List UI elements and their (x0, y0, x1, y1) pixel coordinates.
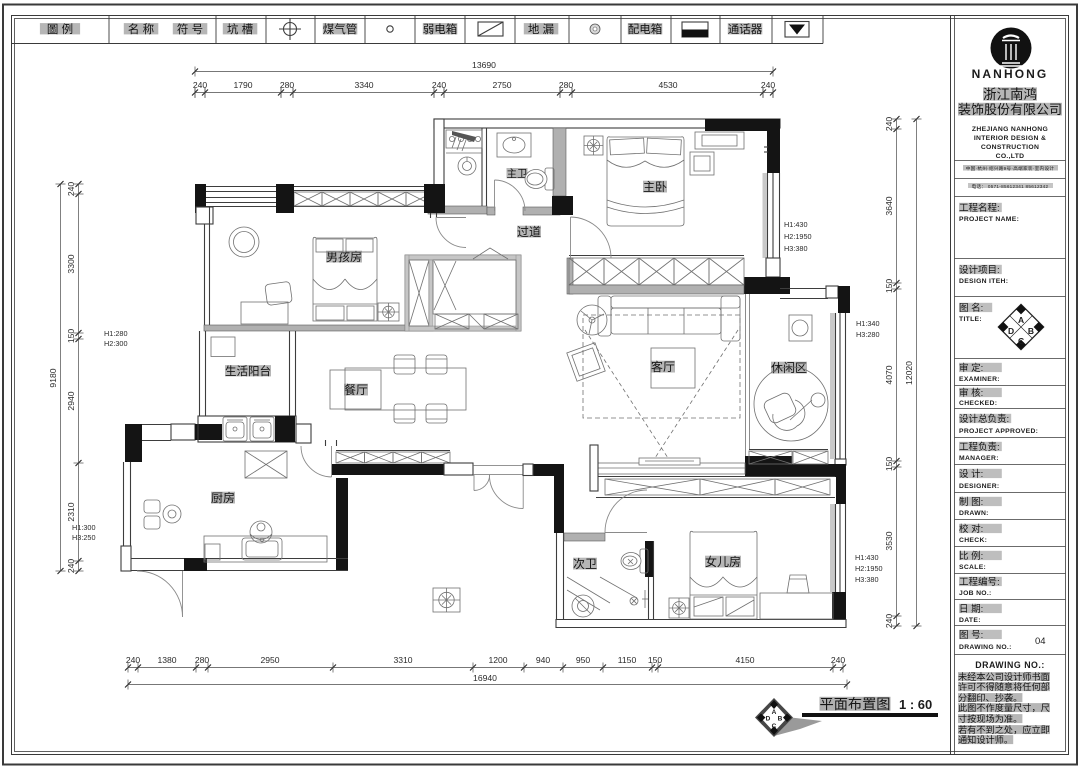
svg-text:280: 280 (280, 80, 295, 90)
svg-text:1380: 1380 (157, 655, 176, 665)
svg-text:C: C (772, 723, 777, 730)
svg-text:生活阳台: 生活阳台 (225, 364, 271, 378)
svg-text:女儿房: 女儿房 (705, 554, 741, 569)
svg-text:装饰股份有限公司: 装饰股份有限公司 (958, 102, 1062, 117)
svg-text:B: B (778, 716, 783, 723)
svg-text:许可不得随意将任何部: 许可不得随意将任何部 (958, 681, 1050, 692)
svg-text:B: B (1028, 326, 1034, 336)
svg-text:H3:380: H3:380 (855, 575, 879, 584)
svg-text:寸按现场为准。: 寸按现场为准。 (958, 713, 1022, 724)
svg-text:3340: 3340 (354, 80, 373, 90)
svg-text:符 号: 符 号 (177, 22, 203, 36)
svg-text:150: 150 (66, 329, 76, 344)
svg-text:INTERIOR DESIGN &: INTERIOR DESIGN & (974, 135, 1046, 142)
svg-text:H1:280: H1:280 (104, 329, 128, 338)
svg-text:280: 280 (195, 655, 210, 665)
svg-text:审 核:: 审 核: (959, 387, 983, 399)
svg-text:H3:280: H3:280 (856, 330, 880, 339)
svg-text:4150: 4150 (735, 655, 754, 665)
svg-text:240: 240 (66, 182, 76, 197)
svg-text:240: 240 (831, 655, 846, 665)
svg-text:1200: 1200 (488, 655, 507, 665)
svg-text:240: 240 (432, 80, 447, 90)
svg-text:H1:430: H1:430 (855, 553, 879, 562)
svg-text:JOB NO.:: JOB NO.: (959, 590, 992, 597)
svg-text:280: 280 (559, 80, 574, 90)
svg-text:平面布置图: 平面布置图 (820, 697, 891, 713)
svg-text:浙江南鸿: 浙江南鸿 (983, 86, 1037, 102)
svg-text:1150: 1150 (618, 655, 637, 665)
svg-text:DESIGNER:: DESIGNER: (959, 483, 999, 490)
svg-text:240: 240 (193, 80, 208, 90)
svg-text:客厅: 客厅 (651, 359, 675, 374)
svg-text:圖 例: 圖 例 (47, 22, 73, 36)
svg-text:3310: 3310 (393, 655, 412, 665)
svg-text:1 : 60: 1 : 60 (899, 697, 932, 712)
svg-text:240: 240 (884, 117, 894, 132)
svg-text:MANAGER:: MANAGER: (959, 455, 999, 462)
svg-text:H3:250: H3:250 (72, 533, 96, 542)
svg-text:DATE:: DATE: (959, 617, 981, 624)
svg-text:比 例:: 比 例: (959, 550, 983, 562)
svg-text:弱电箱: 弱电箱 (423, 22, 458, 36)
svg-text:DRAWING NO.:: DRAWING NO.: (959, 644, 1012, 651)
svg-text:设 计:: 设 计: (959, 468, 983, 480)
svg-text:4070: 4070 (884, 365, 894, 384)
svg-text:工程编号:: 工程编号: (959, 576, 1000, 588)
svg-text:CHECK:: CHECK: (959, 537, 987, 544)
svg-text:2950: 2950 (260, 655, 279, 665)
svg-text:D: D (1008, 326, 1014, 336)
svg-text:A: A (1018, 315, 1024, 325)
svg-text:TITLE:: TITLE: (959, 316, 982, 323)
svg-text:2940: 2940 (66, 391, 76, 410)
svg-text:PROJECT APPROVED:: PROJECT APPROVED: (959, 428, 1038, 435)
svg-text:工程名程:: 工程名程: (959, 202, 1000, 214)
svg-text:坑 槽: 坑 槽 (227, 22, 254, 36)
svg-text:过道: 过道 (517, 225, 541, 239)
svg-text:CHECKED:: CHECKED: (959, 400, 997, 407)
svg-text:设计项目:: 设计项目: (959, 264, 1000, 276)
svg-text:校 对:: 校 对: (959, 523, 983, 535)
svg-text:950: 950 (576, 655, 591, 665)
svg-text:分翻印、抄袭。: 分翻印、抄袭。 (958, 692, 1022, 703)
svg-text:中国·杭州·绍兴路9号·高端家装·室内设计: 中国·杭州·绍兴路9号·高端家装·室内设计 (966, 165, 1055, 172)
svg-text:240: 240 (884, 614, 894, 629)
svg-text:主卧: 主卧 (643, 180, 667, 194)
svg-text:通知设计师。: 通知设计师。 (958, 734, 1013, 745)
svg-text:H1:300: H1:300 (72, 523, 96, 532)
svg-text:12020: 12020 (904, 361, 914, 385)
svg-text:940: 940 (536, 655, 551, 665)
svg-text:CO.,LTD: CO.,LTD (996, 153, 1025, 160)
svg-text:150: 150 (884, 279, 894, 294)
svg-text:H1:430: H1:430 (784, 220, 808, 229)
svg-text:04: 04 (1035, 636, 1046, 647)
svg-text:配电箱: 配电箱 (628, 22, 663, 36)
svg-text:H2:1950: H2:1950 (855, 564, 883, 573)
svg-text:图 名:: 图 名: (959, 302, 983, 314)
svg-text:ZHEJIANG NANHONG: ZHEJIANG NANHONG (972, 126, 1048, 133)
svg-text:2750: 2750 (492, 80, 511, 90)
svg-text:图 号:: 图 号: (959, 630, 983, 641)
svg-text:C: C (1018, 336, 1024, 346)
svg-text:EXAMINER:: EXAMINER: (959, 376, 1000, 383)
svg-text:CONSTRUCTION: CONSTRUCTION (981, 144, 1039, 151)
svg-text:DESIGN ITEH:: DESIGN ITEH: (959, 278, 1008, 285)
svg-text:PROJECT NAME:: PROJECT NAME: (959, 216, 1019, 223)
svg-text:制 图:: 制 图: (959, 496, 983, 508)
svg-text:名 称: 名 称 (128, 22, 155, 36)
svg-text:若有不到之处，应立即: 若有不到之处，应立即 (958, 724, 1050, 735)
svg-text:休闲区: 休闲区 (771, 361, 807, 375)
svg-text:16940: 16940 (473, 673, 497, 683)
svg-text:H1:340: H1:340 (856, 319, 880, 328)
svg-text:240: 240 (761, 80, 776, 90)
svg-text:240: 240 (126, 655, 141, 665)
svg-text:男孩房: 男孩房 (326, 249, 362, 264)
svg-text:DRAWN:: DRAWN: (959, 510, 989, 517)
svg-text:H2:300: H2:300 (104, 339, 128, 348)
svg-text:电话： 0571-85612341 85612342: 电话： 0571-85612341 85612342 (972, 183, 1049, 190)
svg-text:150: 150 (884, 457, 894, 472)
svg-text:9180: 9180 (48, 368, 58, 387)
svg-text:通话器: 通话器 (728, 23, 763, 36)
svg-text:13690: 13690 (472, 60, 496, 70)
svg-text:DRAWING NO.:: DRAWING NO.: (975, 660, 1045, 670)
svg-text:2310: 2310 (66, 502, 76, 521)
svg-text:地 漏: 地 漏 (528, 23, 554, 36)
svg-text:日 期:: 日 期: (959, 604, 983, 615)
svg-text:NANHONG: NANHONG (972, 67, 1049, 81)
svg-text:未经本公司设计师书面: 未经本公司设计师书面 (958, 671, 1050, 682)
svg-text:H3:380: H3:380 (784, 244, 808, 253)
svg-text:D: D (766, 716, 771, 723)
svg-text:SCALE:: SCALE: (959, 564, 986, 571)
svg-text:工程负责:: 工程负责: (959, 441, 1000, 453)
svg-text:3640: 3640 (884, 196, 894, 215)
svg-text:煤气管: 煤气管 (323, 22, 358, 36)
svg-text:次卫: 次卫 (573, 557, 597, 571)
svg-text:设计总负责:: 设计总负责: (959, 413, 1009, 425)
svg-text:3300: 3300 (66, 254, 76, 273)
svg-text:4530: 4530 (658, 80, 677, 90)
svg-text:240: 240 (66, 559, 76, 574)
svg-text:餐厅: 餐厅 (344, 382, 368, 397)
svg-text:3530: 3530 (884, 531, 894, 550)
svg-text:审 定:: 审 定: (959, 362, 983, 374)
svg-text:1790: 1790 (233, 80, 252, 90)
svg-text:主卫: 主卫 (507, 168, 528, 180)
svg-text:150: 150 (648, 655, 663, 665)
svg-text:厨房: 厨房 (211, 490, 235, 505)
svg-text:H2:1950: H2:1950 (784, 232, 812, 241)
svg-text:A: A (772, 709, 777, 716)
svg-text:此图不作度量尺寸，尺: 此图不作度量尺寸，尺 (958, 702, 1050, 713)
